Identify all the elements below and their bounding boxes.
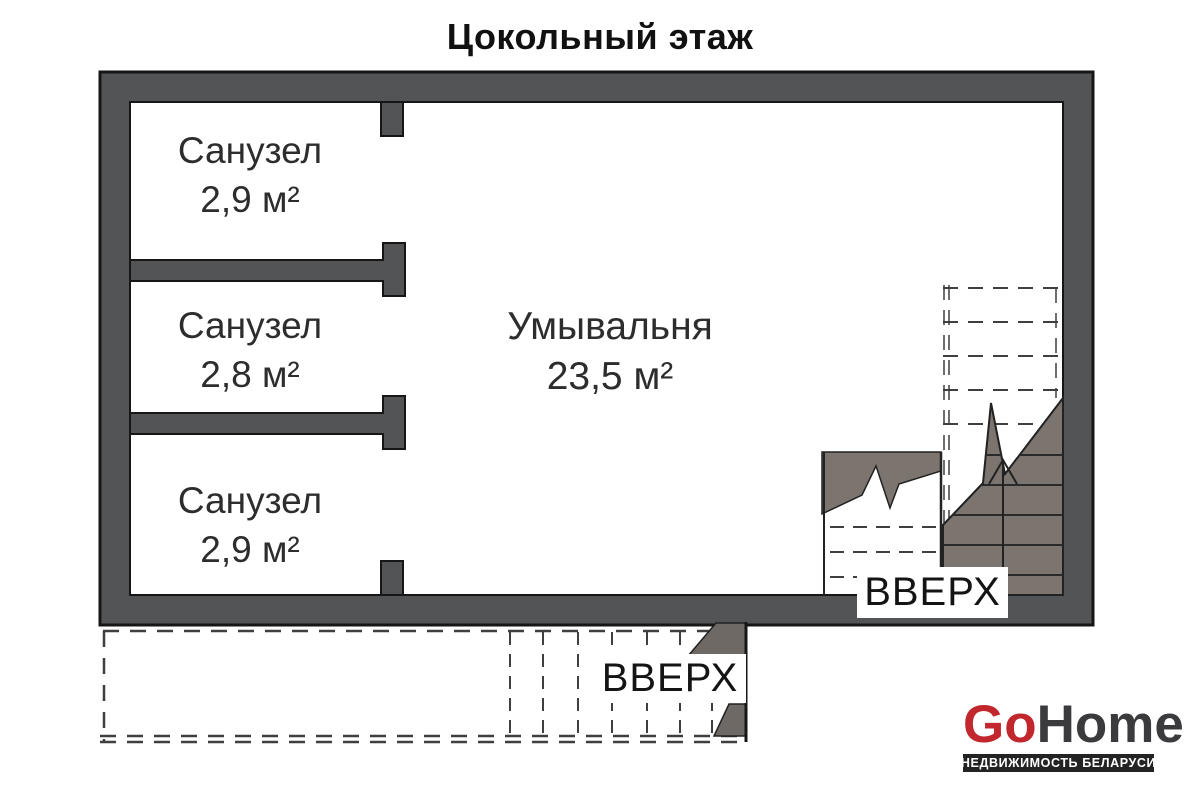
door-jamb-top xyxy=(381,102,403,136)
room-area: 2,8 м² xyxy=(135,350,365,399)
room-label-sanuzel-3: Санузел 2,9 м² xyxy=(135,476,365,574)
logo-home-text: Home xyxy=(1037,695,1184,754)
floor-plan-page: Цокольный этаж xyxy=(0,0,1200,794)
room-area: 2,9 м² xyxy=(135,175,365,224)
exterior-stair-lower-segment xyxy=(714,704,746,736)
room-area: 23,5 м² xyxy=(460,352,760,402)
logo-tagline: НЕДВИЖИМОСТЬ БЕЛАРУСИ xyxy=(963,754,1154,772)
room-area: 2,9 м² xyxy=(135,525,365,574)
gohome-logo-wordmark: GoHome xyxy=(963,698,1163,751)
exterior-stair-upper-segment xyxy=(688,623,746,656)
door-jamb-bottom xyxy=(381,561,403,595)
room-label-sanuzel-1: Санузел 2,9 м² xyxy=(135,126,365,224)
stair-label-exterior: ВВЕРХ xyxy=(594,654,746,703)
room-label-sanuzel-2: Санузел 2,8 м² xyxy=(135,301,365,399)
room-name: Санузел xyxy=(178,130,322,171)
room-name: Санузел xyxy=(178,480,322,521)
room-name: Умывальня xyxy=(507,305,713,348)
logo-go-text: Go xyxy=(963,695,1037,754)
room-label-umyvalnya: Умывальня 23,5 м² xyxy=(460,302,760,402)
gohome-logo: GoHome НЕДВИЖИМОСТЬ БЕЛАРУСИ xyxy=(963,698,1163,772)
stair-label-interior: ВВЕРХ xyxy=(857,567,1008,618)
room-name: Санузел xyxy=(178,305,322,346)
